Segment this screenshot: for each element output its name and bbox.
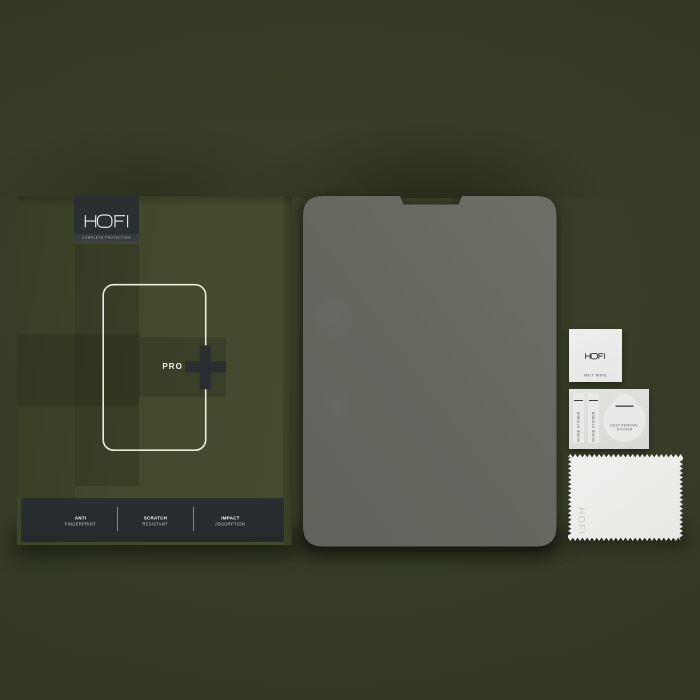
svg-text:DUST REMOVAL: DUST REMOVAL xyxy=(610,423,638,427)
svg-text:STICKER: STICKER xyxy=(617,428,633,432)
svg-text:HOFI: HOFI xyxy=(576,508,587,536)
